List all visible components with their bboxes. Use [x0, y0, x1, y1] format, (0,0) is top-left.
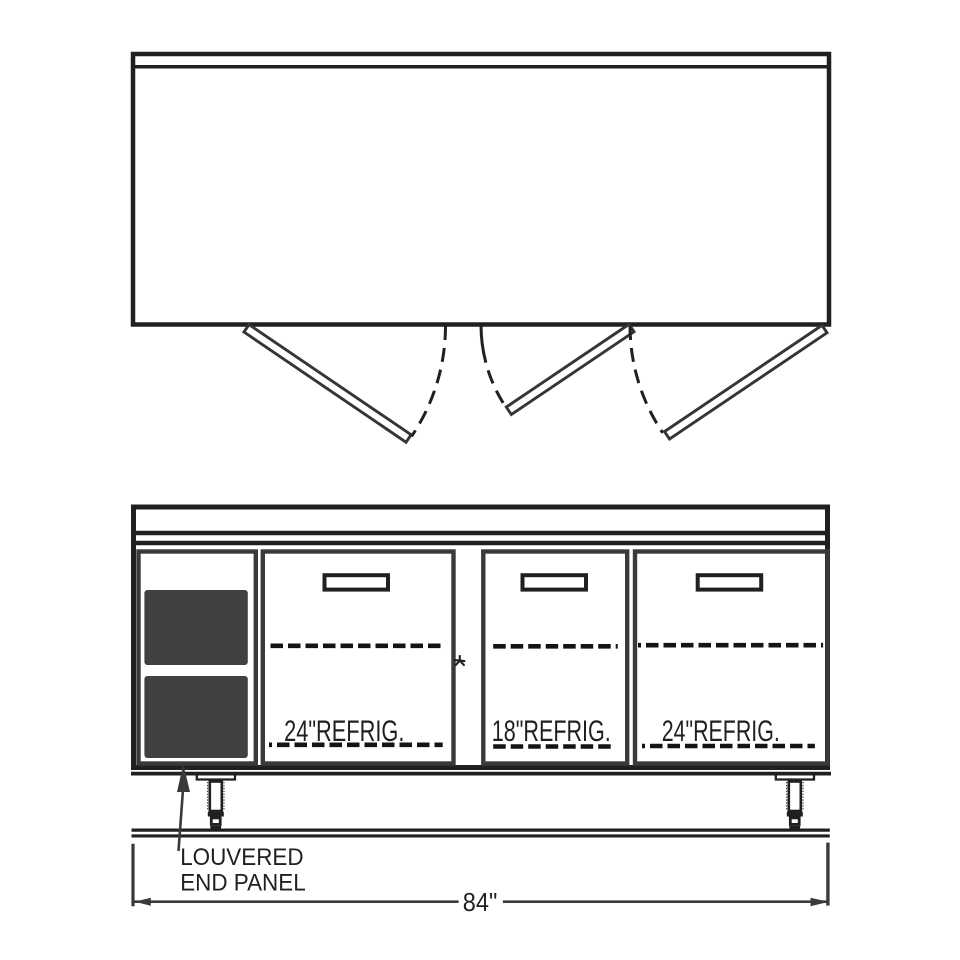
svg-text:24"REFRIG.: 24"REFRIG.: [662, 715, 780, 748]
svg-text:24"REFRIG.: 24"REFRIG.: [284, 715, 404, 748]
svg-text:18"REFRIG.: 18"REFRIG.: [492, 715, 611, 748]
svg-text:END PANEL: END PANEL: [180, 869, 306, 896]
svg-text:LOUVERED: LOUVERED: [180, 844, 303, 871]
svg-text:84": 84": [463, 889, 498, 917]
